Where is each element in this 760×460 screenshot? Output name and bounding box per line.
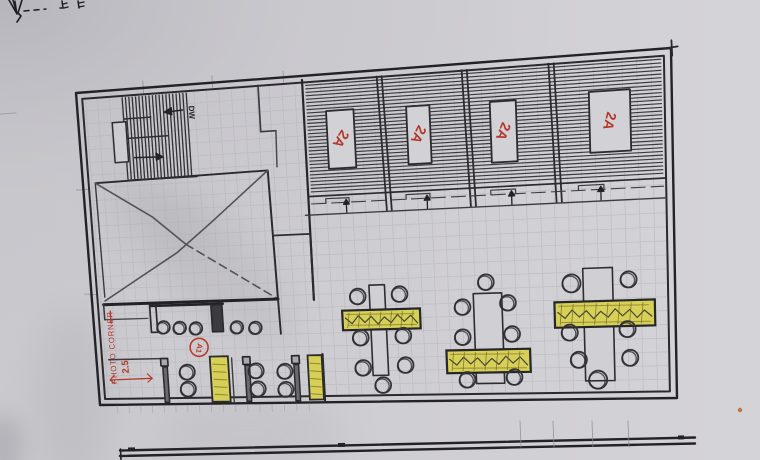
svg-text:DW: DW — [187, 105, 197, 119]
svg-text:2.5: 2.5 — [120, 359, 132, 374]
svg-text:A1: A1 — [194, 343, 205, 354]
